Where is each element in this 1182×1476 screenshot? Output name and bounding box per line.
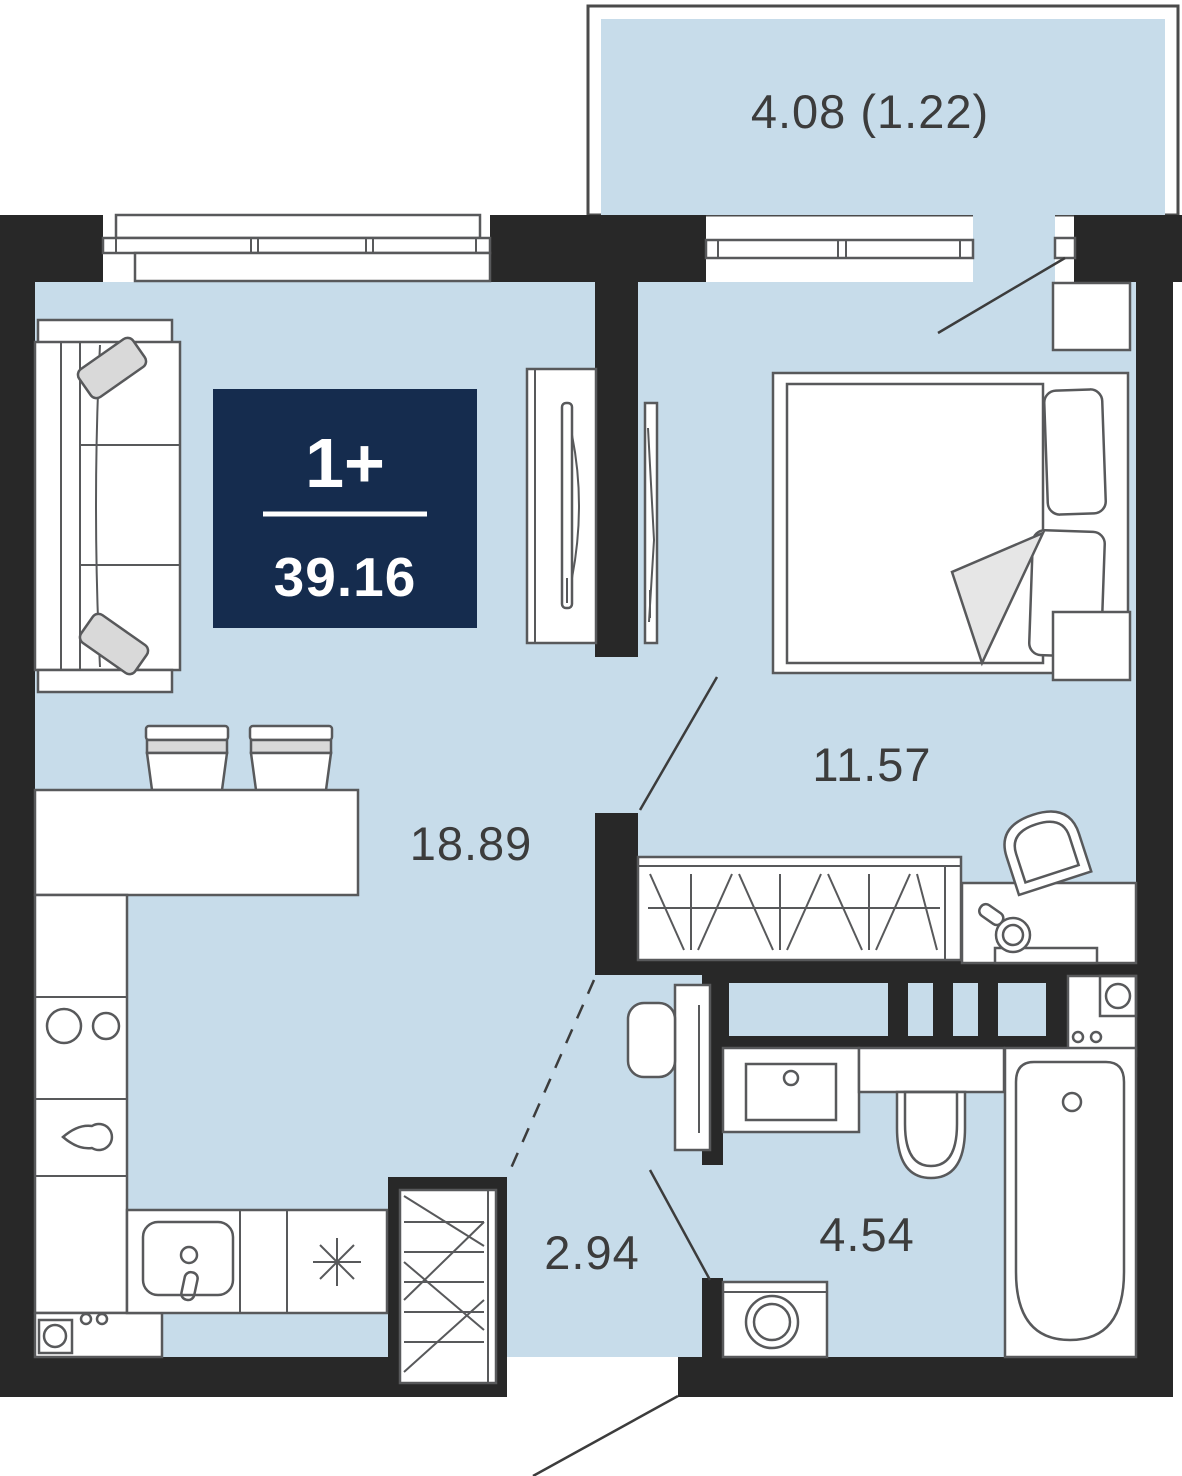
entrance-door-swing (533, 1396, 678, 1476)
kitchen-cabinets (35, 895, 127, 1313)
wall-niche (729, 983, 888, 1036)
bathtub (1005, 1048, 1136, 1357)
bed-pillow (1044, 389, 1106, 515)
bedroom-wardrobe (638, 857, 961, 960)
wall-partition-living-bedroom (595, 215, 638, 657)
floor-plan-canvas: 4.08 (1.22) (0, 0, 1182, 1476)
hall-chair (628, 1003, 675, 1077)
toilet (897, 1092, 965, 1178)
badge-total-area: 39.16 (274, 546, 417, 608)
washing-machine (723, 1282, 827, 1357)
wall-niche (998, 983, 1046, 1036)
entrance-closet (400, 1190, 496, 1383)
wall-bathroom-lower (702, 1278, 723, 1357)
kitchen-sink-counter (127, 1210, 387, 1313)
nightstand (1053, 612, 1130, 680)
bath-counter (859, 1048, 1004, 1092)
badge-rooms-label: 1+ (305, 424, 385, 502)
room-label-hallway: 2.94 (544, 1226, 639, 1279)
floor-plan: 4.08 (1.22) (0, 0, 1182, 1476)
bar-counter (35, 790, 358, 895)
water-heater (1068, 976, 1136, 1056)
door-hinge-block (1055, 238, 1075, 258)
room-label-bedroom: 11.57 (812, 738, 931, 791)
wall-stub-hallway (595, 813, 638, 975)
nightstand (1053, 283, 1130, 350)
mirror-panel (645, 403, 657, 643)
balcony: 4.08 (1.22) (588, 6, 1178, 215)
wardrobe-living (527, 369, 596, 643)
room-label-bathroom: 4.54 (819, 1208, 914, 1261)
apartment-badge: 1+ 39.16 (213, 389, 477, 628)
dressing-table (962, 883, 1136, 963)
kitchen-lower-counter (35, 1313, 162, 1357)
bar-stool (250, 726, 332, 790)
wall-niche (908, 983, 933, 1036)
wall-niche (953, 983, 978, 1036)
sofa (35, 320, 180, 692)
room-label-living-kitchen: 18.89 (410, 817, 533, 870)
living-window (103, 215, 490, 281)
room-label-balcony: 4.08 (1.22) (751, 85, 989, 138)
hob-asterisk-icon (313, 1238, 361, 1286)
bar-stool (146, 726, 228, 790)
bath-vanity (723, 1048, 859, 1132)
hall-console (675, 985, 710, 1150)
